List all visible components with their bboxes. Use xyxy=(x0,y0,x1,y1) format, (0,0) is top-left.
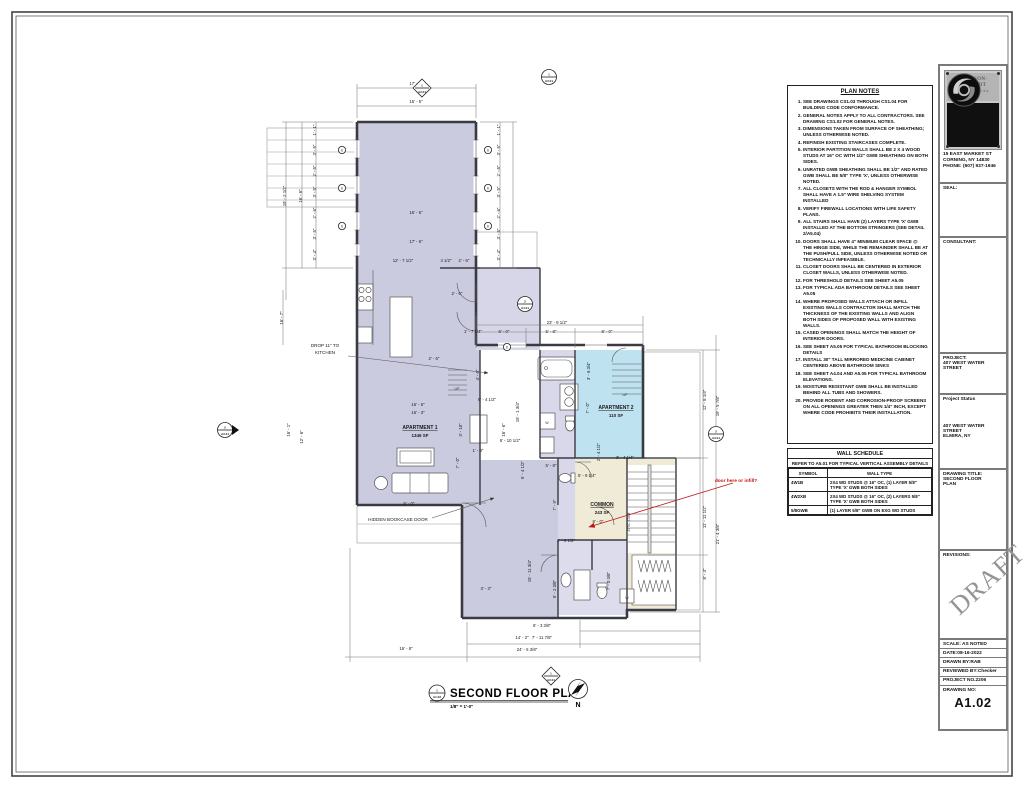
project-address: 407 WEST WATER STREET ELMIRA, NY xyxy=(943,424,1003,439)
room-area-label: 110 SF xyxy=(609,413,624,418)
dimension-label: 4' - 6" xyxy=(475,369,480,380)
firm-section: JOHNSON- SCHMIDT ARCHITECTS PC 15 EAST M… xyxy=(940,66,1006,184)
dimension-label: 7' - 9" xyxy=(552,499,557,510)
dimension-label: 5' - 0" xyxy=(404,501,415,506)
room-area-label: 243 SF xyxy=(595,510,610,515)
window-tag: 6 xyxy=(484,222,491,229)
annotation-label: DROP 11" TO xyxy=(311,343,340,348)
dimension-label: 3' - 4" xyxy=(312,249,317,260)
wall-type: (1) LAYER 5/8" GWB ON EXG WD STUDS xyxy=(828,506,932,515)
dimension-label: 16' - 5" xyxy=(409,210,423,215)
window-tag: 6 xyxy=(484,146,491,153)
svg-text:6: 6 xyxy=(506,345,508,349)
dimension-label: 7' - 0" xyxy=(585,402,590,413)
plan-note-item: CASED OPENINGS SHALL MATCH THE HEIGHT OF… xyxy=(803,330,928,342)
corridor-fill xyxy=(558,458,575,540)
plan-title-sheet-ref: A1.02 xyxy=(433,695,441,699)
dimension-label: 2' - 6" xyxy=(496,165,501,176)
firm-logo-icon xyxy=(947,103,999,147)
wall-schedule-subtitle: REFER TO A5.01 FOR TYPICAL VERTICAL ASSE… xyxy=(788,459,932,468)
dimension-label: 5' - 8" xyxy=(546,329,557,334)
kitchen-island xyxy=(390,297,412,357)
plan-note-item: FOR TYPICAL ADA BATHROOM DETAILS SEE SHE… xyxy=(803,285,928,297)
dimension-label: 7' - 11 7/8" xyxy=(532,635,553,640)
dimension-label: 12' - 8 1/4" xyxy=(702,389,707,410)
room-area-label: 1346 SF xyxy=(411,433,428,438)
drawing-no-label: DRAWING NO: xyxy=(943,688,1003,693)
plan-notes-list: SEE DRAWINGS CS1.03 THROUGH CS1.04 FOR B… xyxy=(792,99,928,416)
sink xyxy=(561,573,571,587)
project-status-label: Project Status xyxy=(943,397,1003,402)
consultant-section: CONSULTANT: xyxy=(940,238,1006,354)
svg-text:A3.01: A3.01 xyxy=(221,432,229,436)
dimension-label: 12' - 6" xyxy=(299,430,304,444)
north-arrow-icon: N xyxy=(569,680,588,710)
dimension-label: 16' - 8" xyxy=(399,646,413,651)
apartment1-living-fill xyxy=(357,268,480,505)
dimension-label: 7' - 0 3/8" xyxy=(606,571,611,590)
dimension-label: 23' - 9 1/2" xyxy=(547,320,568,325)
section-marker-icon: 3A3.01 xyxy=(709,427,724,442)
consultant-label: CONSULTANT: xyxy=(943,240,976,245)
plan-note-item: SEE DRAWINGS CS1.03 THROUGH CS1.04 FOR B… xyxy=(803,99,928,111)
chimney xyxy=(470,415,487,443)
dimension-label: 16' - 7" xyxy=(279,311,284,325)
armchair xyxy=(375,477,388,490)
wall-symbol: 5/8GWB xyxy=(789,506,828,515)
plan-note-item: SEE SHEET A4.04 AND A5.05 FOR TYPICAL BA… xyxy=(803,371,928,383)
dimension-label: 19' - 2 1/2" xyxy=(282,185,287,206)
reviewed-by-row: REVIEWED BY:Checker xyxy=(940,668,1006,677)
drawing-no: A1.02 xyxy=(943,695,1003,710)
svg-text:A3.01: A3.01 xyxy=(545,79,553,83)
plan-note-item: FOR THRESHOLD DETAILS SEE SHEET A5.05 xyxy=(803,278,928,284)
window-tag: 6 xyxy=(338,146,345,153)
dimension-label: 2' - 6" xyxy=(429,356,440,361)
wall-schedule-col-walltype: WALL TYPE xyxy=(828,469,932,478)
shower xyxy=(540,437,554,453)
svg-text:6: 6 xyxy=(487,224,489,228)
dimension-label: 5' - 8" xyxy=(546,463,557,468)
project-status-section: Project Status 407 WEST WATER STREET ELM… xyxy=(940,395,1006,470)
seal-section: SEAL: xyxy=(940,184,1006,238)
dimension-label: 3' - 5" xyxy=(312,228,317,239)
dimension-label: 2' - 6" xyxy=(312,165,317,176)
dimension-label: 14' - 2" xyxy=(515,635,529,640)
wall-schedule-panel: WALL SCHEDULE REFER TO A5.01 FOR TYPICAL… xyxy=(787,448,933,516)
dimension-label: 3' - 5" xyxy=(496,186,501,197)
plan-notes-panel: PLAN NOTES SEE DRAWINGS CS1.03 THROUGH C… xyxy=(787,85,933,444)
dimension-label: 7' - 0" xyxy=(455,457,460,468)
north-label: N xyxy=(575,702,580,709)
dimension-label: 4 1/2" xyxy=(440,258,452,263)
window-tag: 6 xyxy=(503,343,510,350)
wall-schedule-col-symbol: SYMBOL xyxy=(789,469,828,478)
toilet xyxy=(559,474,571,483)
plan-note-item: INTERIOR PARTITION WALLS SHALL BE 2 X 4 … xyxy=(803,147,928,165)
plan-note-item: WHERE PROPOSED WALLS ATTACH OR INFILL EX… xyxy=(803,299,928,329)
fixture-label: W xyxy=(625,596,629,600)
dimension-label: 3' - 3" xyxy=(481,586,492,591)
drawing-title-section: DRAWING TITLE: SECOND FLOOR PLAN xyxy=(940,470,1006,551)
wall-type: 2X4 WD STUDS @ 16" OC, (2) LAYERS 5/8" T… xyxy=(828,492,932,506)
firm-logo: JOHNSON- SCHMIDT ARCHITECTS PC xyxy=(944,70,1002,150)
plan-note-item: ALL STAIRS SHALL HAVE (2) LAYERS TYPE 'X… xyxy=(803,219,928,237)
svg-text:6: 6 xyxy=(341,224,343,228)
dimension-label: 21' - 4 3/8" xyxy=(715,523,720,544)
refrigerator xyxy=(357,327,372,343)
wall-schedule-table: SYMBOL WALL TYPE 4W1B2X4 WD STUDS @ 16" … xyxy=(788,468,932,515)
section-marker-icon: 2A3.01 xyxy=(218,423,240,438)
project-no-row: PROJECT NO.2206 xyxy=(940,677,1006,686)
section-marker-icon: 2A4.01 xyxy=(518,297,533,312)
shower xyxy=(574,570,590,600)
plan-note-item: CLOSET DOORS SHALL BE CENTERED IN EXTERI… xyxy=(803,264,928,276)
dimension-label: 3' - 4" xyxy=(496,249,501,260)
plan-note-item: MOISTURE RESISTANT GWB SHALL BE INSTALLE… xyxy=(803,384,928,396)
bedroom-fill xyxy=(462,460,558,618)
dimension-label: 24' - 6 3/8" xyxy=(517,647,538,652)
plan-note-item: ALL CLOSETS WITH THE ROD & HANGER SYMBOL… xyxy=(803,186,928,204)
dimension-label: 3' - 5" xyxy=(312,144,317,155)
svg-text:6: 6 xyxy=(341,148,343,152)
dimension-label: 17' - 6" xyxy=(409,239,423,244)
plan-note-item: SEE SHEET A5.05 FOR TYPICAL BATHROOM BLO… xyxy=(803,344,928,356)
revisions-label: REVISIONS: xyxy=(943,553,971,558)
dimension-label: 1' - 7 1/4" xyxy=(464,329,483,334)
room-name-label: APARTMENT 1 xyxy=(402,425,437,431)
dimension-label: 2' - 6" xyxy=(452,291,463,296)
dimension-label: 1' - 9 1/2" xyxy=(557,538,576,543)
drawing-title: SECOND FLOOR PLAN xyxy=(943,477,1003,487)
plan-note-item: DIMENSIONS TAKEN FROM SURFACE OF SHEATHI… xyxy=(803,126,928,138)
plan-note-item: INSTALL 30" TALL MIRRORED MEDICINE CABIN… xyxy=(803,357,928,369)
svg-text:6: 6 xyxy=(487,186,489,190)
svg-text:6: 6 xyxy=(487,148,489,152)
dimension-label: 16' - 1" xyxy=(286,423,291,437)
dimension-label: 15' - 1 3/4" xyxy=(515,401,520,422)
plan-note-item: REFINISH EXISTING STAIRCASES COMPLETE. xyxy=(803,140,928,146)
plan-notes-title: PLAN NOTES xyxy=(792,89,928,95)
window-tag: 6 xyxy=(338,222,345,229)
dimension-label: 16' - 6" xyxy=(298,189,303,203)
dimension-label: 8' - 0" xyxy=(593,519,604,524)
room-name-label: COMMON xyxy=(590,502,614,508)
svg-text:A3.01: A3.01 xyxy=(418,90,426,94)
dimension-label: 6' - 0" xyxy=(499,329,510,334)
project-section: PROJECT: 407 WEST WATER STREET xyxy=(940,354,1006,395)
annotation-label: HIDDEN BOOKCASE DOOR xyxy=(368,517,428,522)
plan-note-item: VERIFY FIREWALL LOCATIONS WITH LIFE SAFE… xyxy=(803,206,928,218)
wall-schedule-row: 5/8GWB(1) LAYER 5/8" GWB ON EXG WD STUDS xyxy=(789,506,932,515)
fixture-label: UP xyxy=(455,387,461,391)
dimension-label: 6' - 10 1/2" xyxy=(500,438,521,443)
dimension-label: 3' - 5" xyxy=(496,228,501,239)
annotation-label: KITCHEN xyxy=(315,350,335,355)
dimension-label: 19' - 5 7/8" xyxy=(715,395,720,416)
dimension-label: 5' - 2 3/8" xyxy=(552,579,557,598)
plan-title: SECOND FLOOR PLAN xyxy=(450,688,586,700)
svg-text:A3.01: A3.01 xyxy=(712,436,720,440)
dimension-label: 2' - 6" xyxy=(496,207,501,218)
wall-type: 2X4 WD STUDS @ 16" OC, (1) LAYER 5/8" TY… xyxy=(828,478,932,492)
dimension-label: 3' - 5" xyxy=(496,144,501,155)
fixture-label: UP xyxy=(623,393,629,397)
stair-well-fill xyxy=(627,465,676,553)
plan-note-item: GENERAL NOTES APPLY TO ALL CONTRACTORS. … xyxy=(803,113,928,125)
sofa xyxy=(392,473,448,493)
dimension-label: 5' - 4 1/2" xyxy=(520,460,525,479)
wall-symbol: 4W2XB xyxy=(789,492,828,506)
svg-text:A4.01: A4.01 xyxy=(521,306,529,310)
dimension-label: 16' - 5" xyxy=(409,99,423,104)
fixture-label: W xyxy=(545,421,549,425)
plan-note-item: UNRATED GWB SHEATHING SHALL BE 1/2" AND … xyxy=(803,167,928,185)
dimension-label: 12' - 7 1/2" xyxy=(393,258,414,263)
dimension-label: 16' - 3" xyxy=(411,410,425,415)
svg-text:A3.01: A3.01 xyxy=(547,678,555,682)
dimension-label: 2' - 4 1/2" xyxy=(596,442,601,461)
great-room-fill xyxy=(357,122,476,268)
scale-row: SCALE: AS NOTED xyxy=(940,640,1006,649)
dimension-label: 15' - 11 3/4" xyxy=(527,559,532,582)
dimension-label: 1' - 9" xyxy=(473,448,484,453)
date-row: DATE:08-16-2022 xyxy=(940,649,1006,658)
window-tag: 6 xyxy=(484,184,491,191)
plan-scale: 1/8" = 1'-0" xyxy=(450,704,473,709)
dimension-label: 3' - 6 3/4" xyxy=(586,361,591,380)
dimension-label: 6' - 3 3/8" xyxy=(533,623,552,628)
drawing-sheet: 1 A1.02 SECOND FLOOR PLAN 1/8" = 1'-0" N… xyxy=(0,0,1024,788)
wall-schedule-row: 4W1B2X4 WD STUDS @ 16" OC, (1) LAYER 5/8… xyxy=(789,478,932,492)
dimension-label: 16' - 6" xyxy=(501,423,506,437)
plan-note-item: DOORS SHALL HAVE 4" MINIMUM CLEAR SPACE … xyxy=(803,239,928,263)
firm-address: 15 EAST MARKET ST CORNING, NY 14830 PHON… xyxy=(943,152,1003,170)
wall-symbol: 4W1B xyxy=(789,478,828,492)
wall-schedule-row: 4W2XB2X4 WD STUDS @ 16" OC, (2) LAYERS 5… xyxy=(789,492,932,506)
plan-note-item: PROVIDE RODENT AND CORROSION-PROOF SCREE… xyxy=(803,398,928,416)
wall-schedule-title: WALL SCHEDULE xyxy=(788,449,932,459)
dimension-label: 1' - 1" xyxy=(312,124,317,135)
dimension-label: 5' - 9 1/4" xyxy=(578,473,597,478)
drawing-no-section: DRAWING NO: A1.02 xyxy=(940,686,1006,729)
title-block: JOHNSON- SCHMIDT ARCHITECTS PC 15 EAST M… xyxy=(938,64,1008,731)
dimension-label: 1' - 1" xyxy=(496,124,501,135)
seal-label: SEAL: xyxy=(943,186,957,191)
bathtub xyxy=(538,357,575,380)
dimension-label: 3' - 4 1/4" xyxy=(616,455,635,460)
room-name-label: APARTMENT 2 xyxy=(598,405,633,411)
section-marker-icon: 1A3.01 xyxy=(542,70,557,85)
plan-title-group: 1 A1.02 SECOND FLOOR PLAN 1/8" = 1'-0" N xyxy=(429,680,588,710)
dimension-label: 16' - 6" xyxy=(411,402,425,407)
dimension-label: 3' - 10" xyxy=(458,423,463,437)
dimension-label: 11' - 11 1/2" xyxy=(702,505,707,528)
dimension-label: 3' - 5" xyxy=(312,186,317,197)
fixture-label: ATTIC STAIR xyxy=(627,512,631,532)
dimension-label: 2' - 6" xyxy=(459,258,470,263)
dimension-label: 2' - 6" xyxy=(312,207,317,218)
section-marker-icon: 1A3.01 xyxy=(542,667,560,685)
dimension-label: 8' - 4 1/2" xyxy=(478,397,497,402)
dimension-label: 8' - 0" xyxy=(602,329,613,334)
dimension-label: 8' - 4" xyxy=(702,568,707,579)
revisions-section: REVISIONS: DRAFT xyxy=(940,551,1006,640)
project-name: 407 WEST WATER STREET xyxy=(943,361,1001,371)
window-tag: 6 xyxy=(338,184,345,191)
svg-text:6: 6 xyxy=(341,186,343,190)
redline-annotation: door here or infill? xyxy=(715,478,757,484)
drawn-by-row: DRAWN BY:RAB xyxy=(940,658,1006,667)
